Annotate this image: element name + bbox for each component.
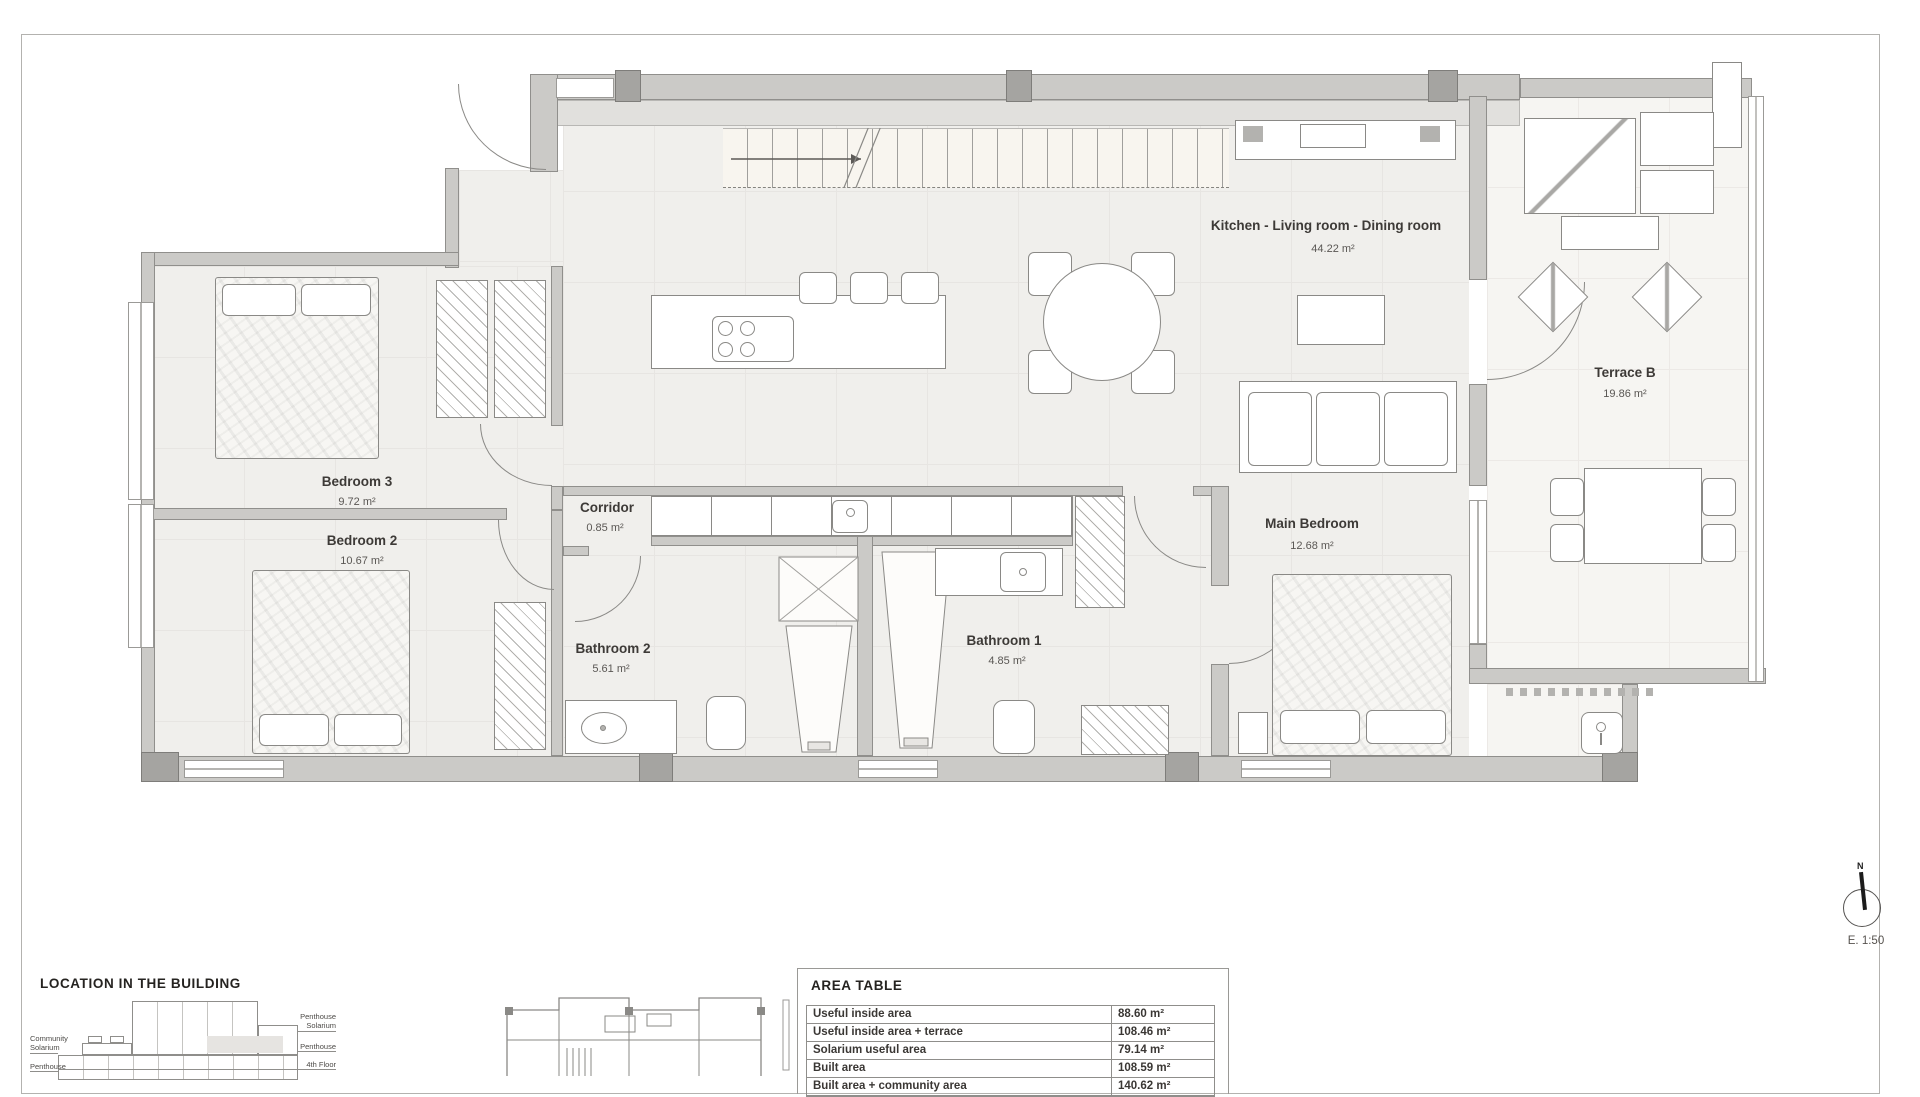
wall [1211,486,1229,586]
chair [1702,478,1736,516]
building-label: 4th Floor [270,1060,336,1069]
sofa-seat [1248,392,1312,466]
room-label: Bedroom 3 [322,474,393,489]
outdoor-shower-drain-icon [1596,722,1606,732]
sofa-seat [1384,392,1448,466]
compass: N E. 1:50 [1820,855,1900,955]
room-label: Bedroom 2 [327,533,398,548]
balustrade-vents [1506,688,1656,696]
room-area: 5.61 m² [592,663,629,675]
scale-label: E. 1:50 [1832,935,1900,947]
outdoor-shower-arrow-icon [1600,733,1602,745]
pillow [222,284,296,316]
wardrobe [1081,705,1169,755]
floor [459,170,563,266]
door-arc [458,84,546,170]
wardrobe [494,602,546,750]
bar-stool [901,272,939,304]
wall [563,486,1123,496]
chair [1702,524,1736,562]
area-table-value: 79.14 m² [1112,1042,1214,1059]
terrace-lounge [1524,118,1636,214]
window [858,760,938,778]
kitchen-sink [1243,126,1263,142]
room-label: Kitchen - Living room - Dining room [1211,218,1441,233]
nightstand [1238,712,1268,754]
drain [600,725,606,731]
coffee-table [1297,295,1385,345]
chair [1550,524,1584,562]
area-table-label: Solarium useful area [807,1042,1112,1059]
wall [153,508,507,520]
toilet [993,700,1035,754]
location-section-title: LOCATION IN THE BUILDING [40,976,241,991]
building-label: Community Solarium [30,1034,84,1052]
wall [1211,664,1229,756]
glass-railing [1748,96,1764,682]
burner [740,321,755,336]
terrace-dining-table [1584,468,1702,564]
kitchen-island [651,295,946,369]
window [128,302,154,500]
wall [1469,96,1487,280]
chair [1550,478,1584,516]
pillow [1280,710,1360,744]
laundry-tap-icon [846,508,855,517]
building-label: Penthouse Solarium [270,1012,336,1030]
pillow [259,714,329,746]
wall [551,266,563,426]
room-area: 4.85 m² [988,655,1025,667]
room-label: Main Bedroom [1265,516,1359,531]
shower [778,556,860,756]
window [1241,760,1331,778]
area-table: Useful inside area 88.60 m² Useful insid… [806,1005,1215,1097]
pillow [301,284,371,316]
outdoor-shower [1581,712,1623,754]
burner [740,342,755,357]
drain [1019,568,1027,576]
building-chimney [110,1036,124,1043]
wall [563,546,589,556]
pillow [334,714,402,746]
wall-pillar [615,70,641,102]
wardrobe [494,280,546,418]
window [184,760,284,778]
wardrobe [436,280,488,418]
area-table-label: Useful inside area + terrace [807,1024,1112,1041]
wall [1469,668,1766,684]
terrace-table [1561,216,1659,250]
room-label: Bathroom 1 [966,633,1041,648]
area-table-label: Built area [807,1060,1112,1077]
room-label: Terrace B [1594,365,1655,380]
building-block [58,1055,298,1080]
leader-line [298,1051,336,1052]
wall [141,252,459,266]
north-label: N [1857,861,1864,871]
leader-line [298,1031,336,1032]
wall [1193,486,1213,496]
room-area: 12.68 m² [1290,540,1333,552]
leader-line [30,1053,58,1054]
area-table-value: 108.46 m² [1112,1024,1214,1041]
bar-stool [850,272,888,304]
wall-pillar [639,752,673,782]
window [556,78,614,98]
wall [551,486,563,510]
toilet [706,696,746,750]
area-table-value: 88.60 m² [1112,1006,1214,1023]
area-table-row: Useful inside area 88.60 m² [807,1006,1214,1024]
floor-line [58,1069,298,1070]
building-label: Penthouse [30,1062,84,1071]
building-block [82,1043,132,1055]
area-table-label: Useful inside area [807,1006,1112,1023]
burner [718,321,733,336]
key-plan [497,988,797,1080]
wardrobe [1075,496,1125,608]
area-table-value: 140.62 m² [1112,1078,1214,1095]
pillow [1366,710,1446,744]
area-table-panel: AREA TABLE Useful inside area 88.60 m² U… [797,968,1229,1094]
leader-line [30,1071,58,1072]
terrace-sofa [1640,170,1714,214]
floor-plan-page: { "plan": { "rooms": [ {"name": "Bedroom… [0,0,1920,1080]
area-table-row: Useful inside area + terrace 108.46 m² [807,1024,1214,1042]
bar-stool [799,272,837,304]
room-label: Corridor [580,500,634,515]
room-area: 19.86 m² [1603,388,1646,400]
area-table-row: Built area 108.59 m² [807,1060,1214,1078]
room-area: 0.85 m² [586,522,623,534]
room-label: Bathroom 2 [575,641,650,656]
building-label: Penthouse [270,1042,336,1051]
room-area: 44.22 m² [1311,243,1354,255]
wall-pillar [1428,70,1458,102]
room-area: 10.67 m² [340,555,383,567]
area-table-label: Built area + community area [807,1078,1112,1095]
dining-table-round [1043,263,1161,381]
area-table-row: Built area + community area 140.62 m² [807,1078,1214,1096]
wall-pillar [1006,70,1032,102]
terrace-sofa [1640,112,1714,166]
window [128,504,154,648]
wall-pillar [1165,752,1199,782]
floor-plan: Bedroom 3 9.72 m² Bedroom 2 10.67 m² Cor… [0,0,1920,1080]
sofa-seat [1316,392,1380,466]
window [1469,500,1487,644]
column [1712,62,1742,148]
location-section: LOCATION IN THE BUILDING Penthouse Solar… [0,960,480,1080]
area-table-title: AREA TABLE [811,978,903,993]
wall-pillar [1602,752,1638,782]
wall-pillar [141,752,179,782]
leader-line [298,1069,336,1070]
area-table-value: 108.59 m² [1112,1060,1214,1077]
burner [718,342,733,357]
kitchen-appliance [1300,124,1366,148]
stairs-arrow [723,128,1229,188]
room-area: 9.72 m² [338,496,375,508]
building-chimney [88,1036,102,1043]
kitchen-appliance [1420,126,1440,142]
wall [1469,384,1487,486]
area-table-row: Solarium useful area 79.14 m² [807,1042,1214,1060]
